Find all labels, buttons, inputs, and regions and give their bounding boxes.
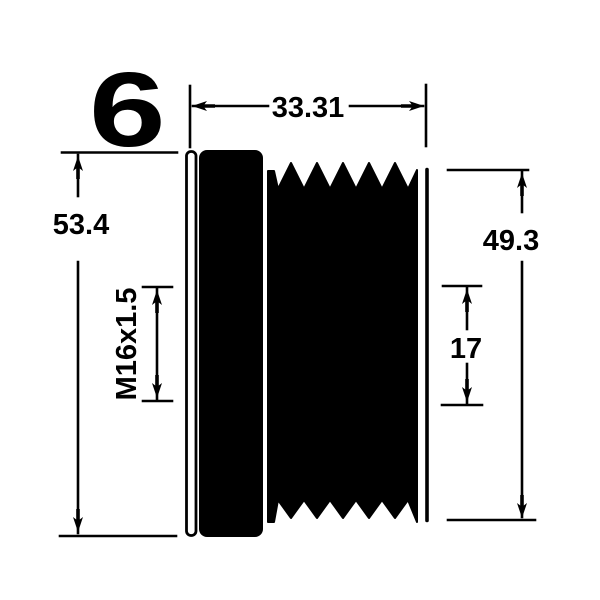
arrowhead-up-icon <box>73 156 83 179</box>
dimension-inner-length-value: 17 <box>450 333 482 365</box>
arrowhead-up-icon <box>462 289 472 312</box>
pulley-silhouette <box>187 150 428 537</box>
pulley-dimension-diagram: 6 33.31 53.4 <box>0 0 600 600</box>
dimension-ribbed-diameter-value: 49.3 <box>483 225 539 257</box>
dimension-width-value: 33.31 <box>272 92 345 124</box>
dimension-thread: M16x1.5 <box>111 287 172 401</box>
arrowhead-down-icon <box>152 375 162 398</box>
arrowhead-up-icon <box>152 290 162 313</box>
arrowhead-down-icon <box>517 495 527 518</box>
pulley-hub <box>199 150 263 537</box>
technical-drawing-canvas: 6 33.31 53.4 <box>0 0 600 600</box>
dimension-thread-value: M16x1.5 <box>111 288 143 401</box>
dimension-width: 33.31 <box>190 85 426 147</box>
dimension-outer-diameter-value: 53.4 <box>53 209 109 241</box>
arrowhead-down-icon <box>462 379 472 402</box>
pulley-flange-rim-left <box>187 152 197 536</box>
arrowhead-up-icon <box>517 173 527 196</box>
arrowhead-left-icon <box>192 101 215 111</box>
dimension-inner-length: 17 <box>442 286 482 405</box>
pulley-ribbed-body <box>268 163 417 522</box>
arrowhead-down-icon <box>73 509 83 532</box>
arrowhead-right-icon <box>401 101 424 111</box>
